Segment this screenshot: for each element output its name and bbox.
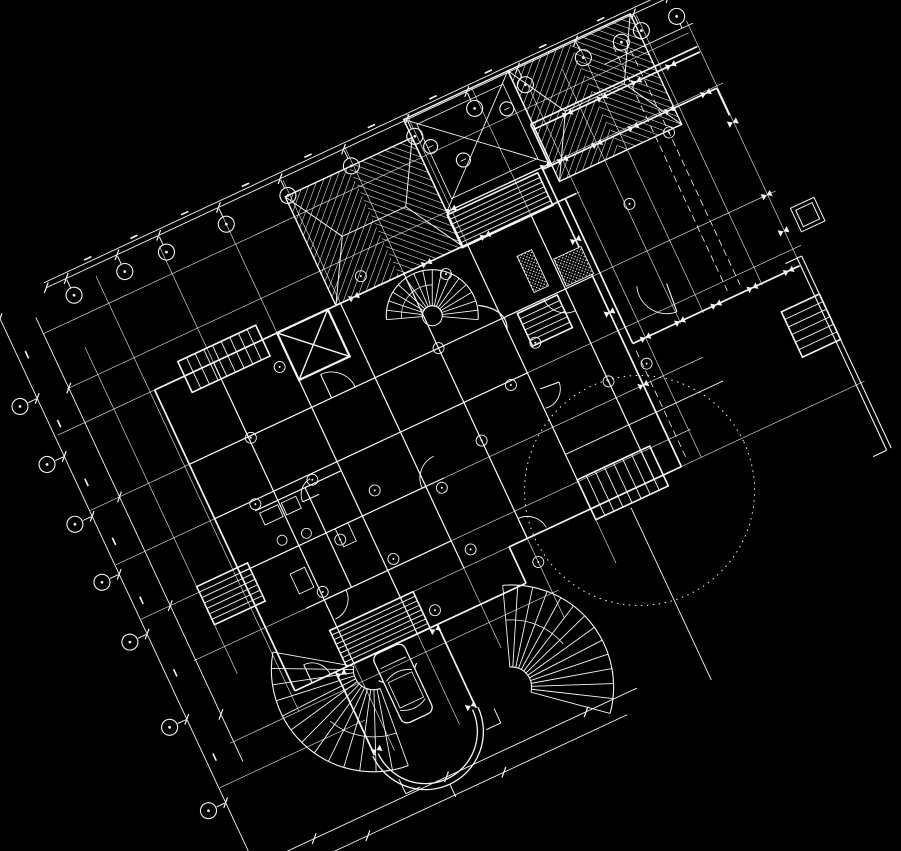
blueprint-stage [0, 0, 901, 851]
floor-plan-drawing [0, 0, 901, 851]
background [0, 0, 901, 851]
